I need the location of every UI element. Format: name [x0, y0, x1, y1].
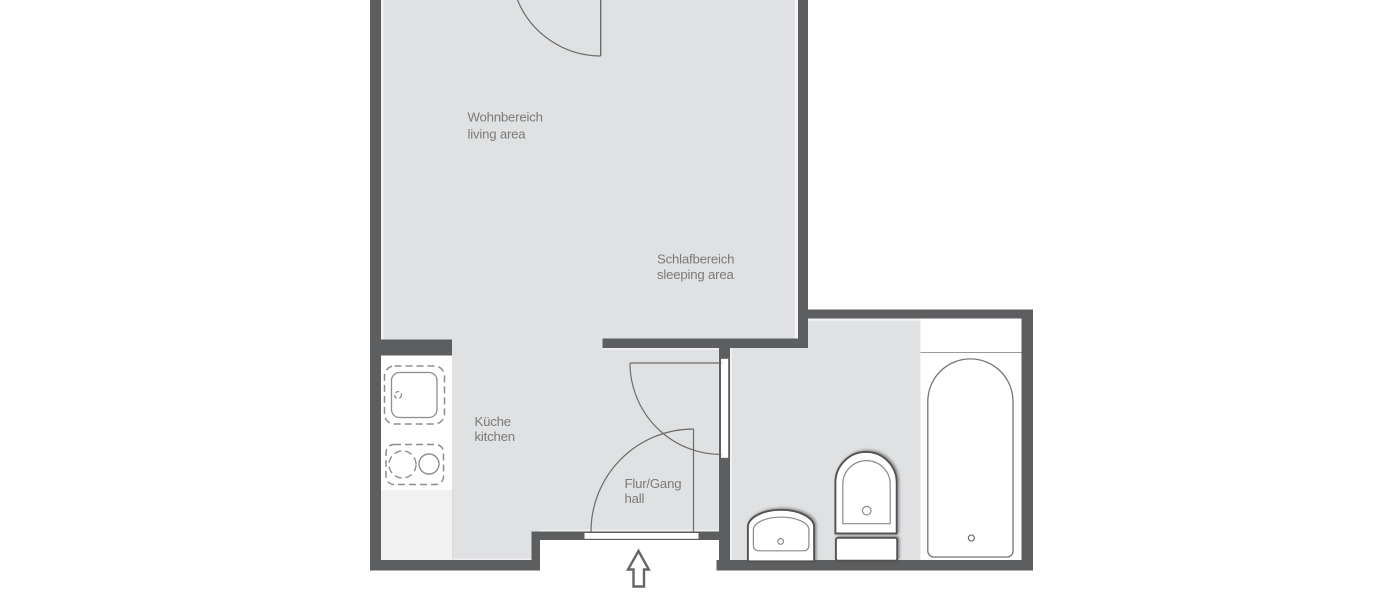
svg-text:Küche: Küche [475, 414, 511, 429]
svg-text:sleeping area: sleeping area [657, 267, 734, 282]
svg-text:Schlafbereich: Schlafbereich [657, 252, 734, 267]
svg-text:living area: living area [468, 127, 527, 142]
svg-text:kitchen: kitchen [475, 429, 515, 444]
svg-text:Wohnbereich: Wohnbereich [468, 110, 543, 125]
svg-text:Flur/Gang: Flur/Gang [625, 476, 682, 491]
svg-text:hall: hall [625, 491, 645, 506]
